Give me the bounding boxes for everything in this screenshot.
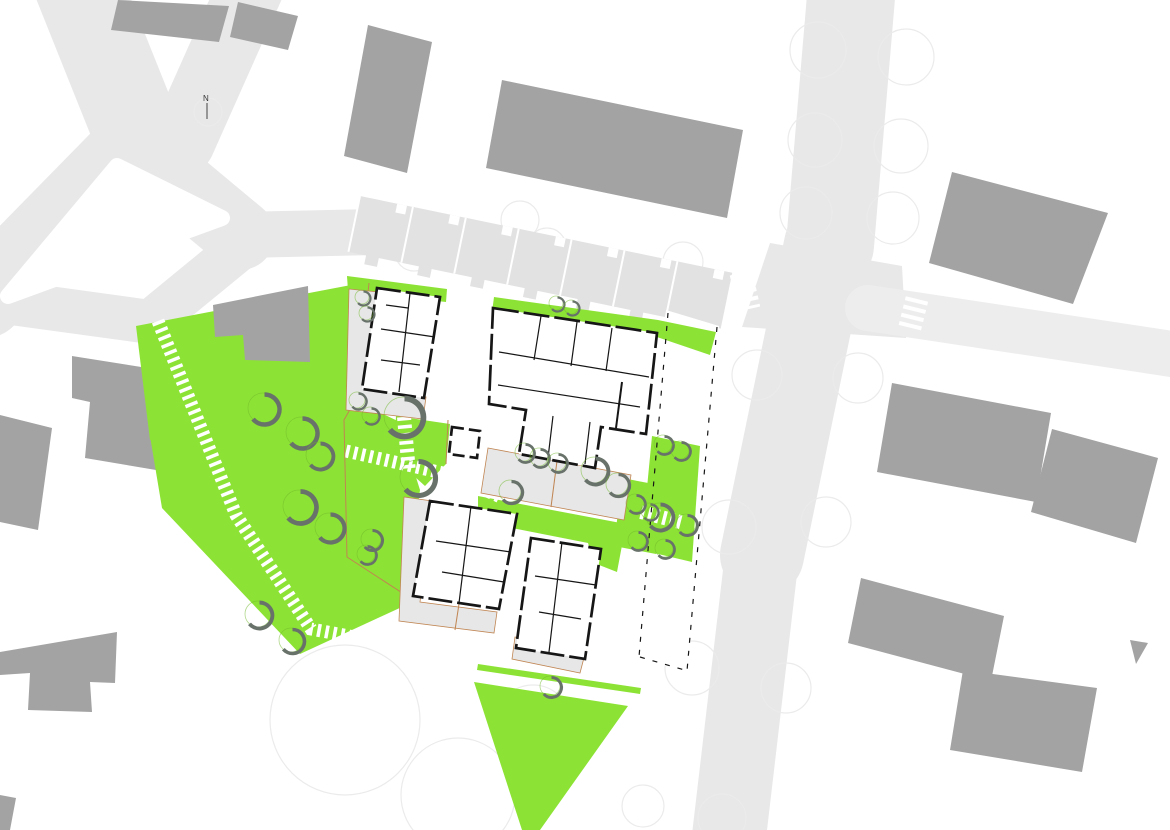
context-building — [0, 632, 117, 712]
context-building — [950, 670, 1097, 772]
north-label: N — [203, 94, 209, 103]
context-building — [877, 383, 1051, 502]
existing-tree-circle — [622, 785, 664, 827]
site-plan-svg: N — [0, 0, 1170, 830]
garden-pavilion — [449, 427, 480, 458]
context-building — [344, 25, 432, 173]
apartment-building-a — [362, 288, 440, 398]
park-green-lower — [150, 402, 420, 654]
context-building — [1031, 429, 1158, 543]
context-building — [486, 80, 743, 218]
context-building — [929, 172, 1108, 304]
context-building — [848, 578, 1004, 681]
road-east — [868, 308, 1170, 356]
context-building — [0, 415, 52, 530]
road-main-south — [728, 555, 762, 830]
site-plan: N — [0, 0, 1170, 830]
road-west-arm — [0, 300, 150, 322]
context-building — [1130, 640, 1148, 664]
apartment-building-d — [516, 538, 601, 659]
hatched-footpath — [741, 273, 749, 309]
context-building — [0, 795, 16, 830]
existing-tree-circle — [270, 645, 420, 795]
green-wedge-south — [474, 682, 628, 830]
